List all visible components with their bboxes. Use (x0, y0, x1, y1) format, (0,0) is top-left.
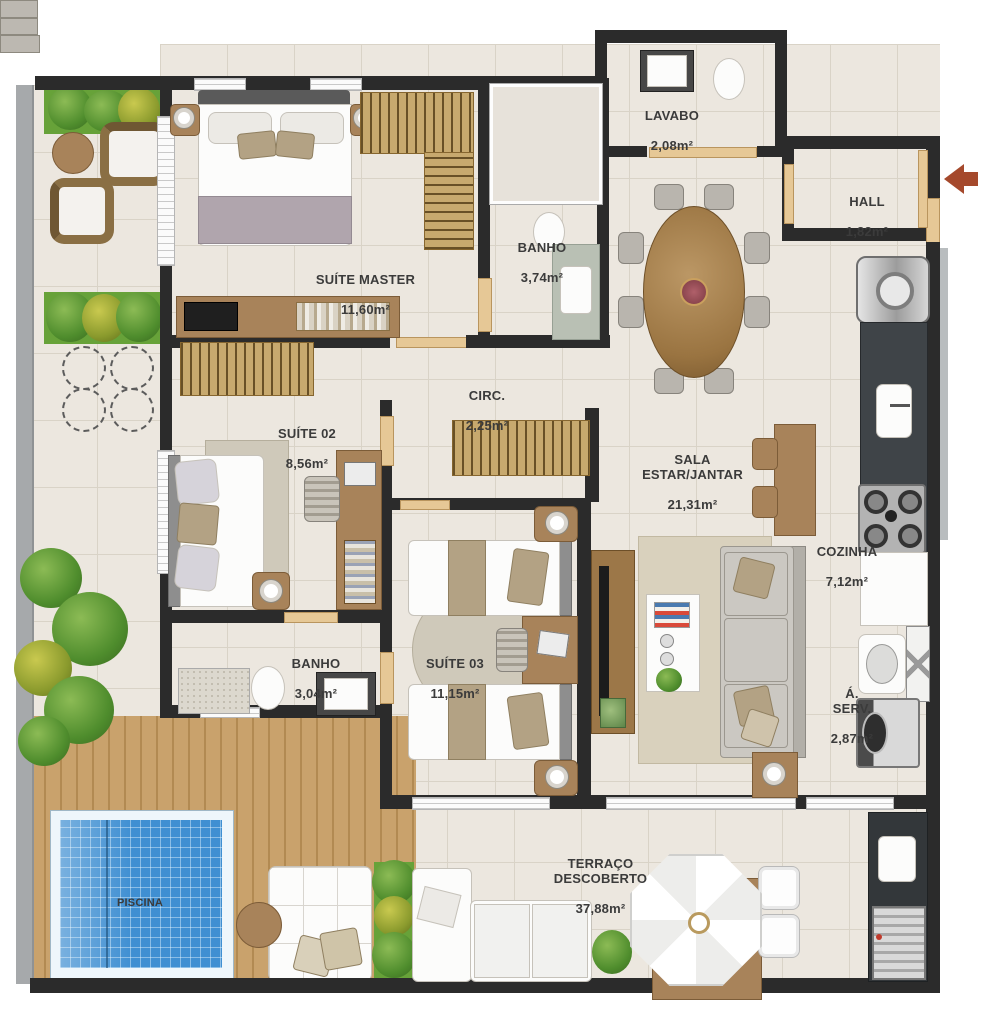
sink (647, 55, 687, 87)
stove-knob (885, 510, 897, 522)
closet-suite-master (424, 152, 474, 250)
burner (864, 490, 888, 514)
room-area: 11,60m² (293, 303, 438, 318)
outdoor-chair (758, 914, 800, 958)
closet-suite-02 (180, 342, 314, 396)
dashed-circle-marker (110, 346, 154, 390)
room-name: SALA ESTAR/JANTAR (610, 453, 775, 483)
cup (660, 652, 674, 666)
room-area: 3,04m² (256, 687, 376, 702)
pillow (173, 544, 220, 593)
room-label-hall: HALL 1,82m² (802, 180, 932, 255)
entry-arrow-icon (944, 160, 986, 200)
dashed-circle-marker (110, 388, 154, 432)
room-name: SUÍTE MASTER (293, 273, 438, 288)
pillow (174, 458, 220, 506)
toilet-tank (0, 35, 40, 53)
burner (898, 490, 922, 514)
sofa-cushion (724, 618, 788, 682)
lamp (174, 108, 194, 128)
room-area: 3,74m² (482, 271, 602, 286)
lamp (763, 763, 785, 785)
outdoor-chair (758, 866, 800, 910)
room-label-cozinha: COZINHA 7,12m² (786, 530, 908, 605)
lamp (546, 766, 568, 788)
bush (374, 896, 414, 936)
wall (577, 498, 591, 798)
room-label-piscina: PISCINA (85, 884, 195, 922)
room-label-area-servico: Á. SERV. 2,87m² (814, 672, 890, 762)
window-suite-03 (412, 797, 550, 810)
refrigerator-top (876, 272, 914, 310)
garden-boundary-wall (16, 85, 34, 984)
tv (184, 302, 238, 331)
toilet-tank (0, 18, 38, 35)
floor-plan: PISCINA (0, 0, 990, 1024)
room-name: BANHO (256, 657, 376, 672)
room-name: HALL (802, 195, 932, 210)
deck-side-table (236, 902, 282, 948)
room-label-terraco: TERRAÇO DESCOBERTO 37,88m² (518, 842, 683, 932)
bed-blanket (448, 540, 486, 616)
window (806, 797, 894, 810)
lamp (260, 580, 282, 602)
wall (160, 610, 392, 623)
wall (926, 242, 940, 992)
terrace-glass-door (606, 797, 796, 810)
bush (372, 932, 416, 978)
decor-plant (600, 698, 626, 728)
room-area: 2,25m² (427, 419, 547, 434)
room-name: PISCINA (85, 897, 195, 910)
closet-suite-master (360, 92, 474, 154)
room-label-lavabo: LAVABO 2,08m² (612, 94, 732, 169)
cup (660, 634, 674, 648)
lamp (546, 512, 568, 534)
table-plant (656, 668, 682, 692)
tree (18, 716, 70, 766)
dining-chair (654, 184, 684, 210)
laundry-window (906, 626, 930, 702)
tv (599, 566, 609, 716)
pillow (176, 502, 219, 545)
room-label-banho-02: BANHO 3,04m² (256, 642, 376, 717)
door-hall (784, 164, 794, 224)
bookshelf (344, 540, 376, 604)
plant (592, 930, 632, 974)
bed-blanket (198, 196, 352, 244)
dining-chair (744, 232, 770, 264)
laptop (536, 630, 569, 658)
dashed-circle-marker (62, 346, 106, 390)
room-area: 2,08m² (612, 139, 732, 154)
umbrella-pole (688, 912, 710, 934)
door-suite-02 (380, 416, 394, 466)
wall (775, 30, 787, 148)
outdoor-sink (878, 836, 916, 882)
dining-chair (618, 296, 644, 328)
room-name: LAVABO (612, 109, 732, 124)
exterior-wall-trim (940, 248, 948, 540)
pillow (319, 927, 363, 971)
room-label-banho-suite: BANHO 3,74m² (482, 226, 602, 301)
room-name: COZINHA (786, 545, 908, 560)
pillow (275, 130, 316, 160)
door-suite-03 (400, 500, 450, 510)
room-area: 37,88m² (518, 902, 683, 917)
room-area: 11,15m² (394, 687, 516, 702)
kitchen-sink (876, 384, 912, 438)
wall (782, 136, 938, 149)
room-name: TERRAÇO DESCOBERTO (518, 857, 683, 887)
grill-knob (876, 934, 882, 940)
room-label-sala: SALA ESTAR/JANTAR 21,31m² (610, 438, 775, 528)
room-label-suite-master: SUÍTE MASTER 11,60m² (293, 258, 438, 333)
room-name: SUÍTE 02 (247, 427, 367, 442)
room-area: 2,87m² (814, 732, 890, 747)
room-area: 8,56m² (247, 457, 367, 472)
pillow (237, 130, 278, 160)
dining-chair (704, 184, 734, 210)
pillow (506, 548, 549, 606)
bush (116, 292, 162, 342)
room-name: CIRC. (427, 389, 547, 404)
patio-chair (50, 178, 114, 244)
room-name: SUÍTE 03 (394, 657, 516, 672)
room-label-suite-03: SUÍTE 03 11,15m² (394, 642, 516, 717)
dashed-circle-marker (62, 388, 106, 432)
wall (595, 30, 787, 43)
bathroom-floor-granite (178, 668, 250, 714)
shower (490, 84, 602, 204)
room-name: Á. SERV. (814, 687, 890, 717)
bar-counter (774, 424, 816, 536)
magazine (654, 602, 690, 628)
room-area: 1,82m² (802, 225, 932, 240)
room-name: BANHO (482, 241, 602, 256)
window-suite-master (157, 116, 175, 266)
room-label-suite-02: SUÍTE 02 8,56m² (247, 412, 367, 487)
room-label-circ: CIRC. 2,25m² (427, 374, 547, 449)
room-area: 21,31m² (610, 498, 775, 513)
grill (872, 906, 926, 980)
table-centerpiece (680, 278, 708, 306)
dining-chair (744, 296, 770, 328)
door-suite-master (396, 337, 468, 348)
patio-round-table (52, 132, 94, 174)
door-banho-02 (380, 652, 394, 704)
door-banho-02-inner (284, 612, 338, 623)
dining-chair (618, 232, 644, 264)
room-area: 7,12m² (786, 575, 908, 590)
toilet-tank (0, 0, 38, 18)
faucet-icon (890, 404, 910, 407)
